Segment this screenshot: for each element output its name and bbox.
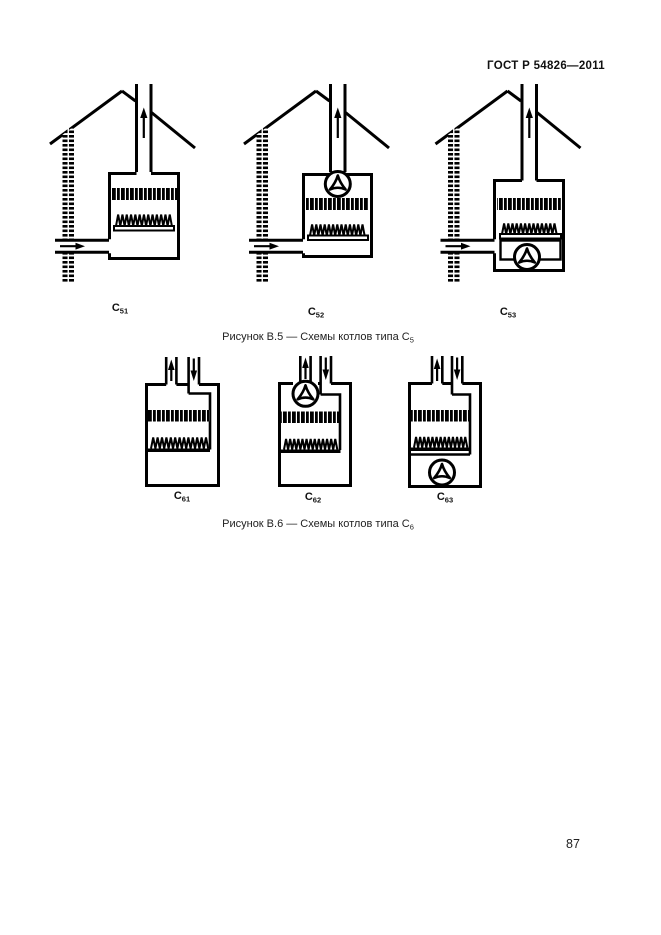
heat-exchanger	[306, 198, 369, 210]
fan-icon	[293, 381, 318, 406]
air-intake-down-arrow-icon	[454, 358, 461, 381]
air-intake-down-arrow-icon	[191, 359, 198, 382]
heat-exchanger	[281, 412, 340, 424]
heat-exchanger	[497, 198, 562, 210]
burner-flames	[502, 224, 557, 235]
diagram-c53	[436, 84, 581, 282]
diagram-label-c62: C62	[305, 491, 321, 505]
burner-bar	[411, 448, 471, 452]
diagram-label-c61: C61	[174, 490, 190, 504]
page-number: 87	[566, 837, 580, 851]
fan-icon	[430, 460, 455, 485]
diagram-label-c63: C63	[437, 491, 453, 505]
figure-b5-caption: Рисунок В.5 — Схемы котлов типа С5	[222, 331, 414, 345]
diagram-label-c51: C51	[112, 302, 128, 316]
heat-exchanger	[111, 188, 177, 200]
diagram-c51	[50, 84, 195, 282]
burner-flames	[116, 215, 172, 227]
burner-bar	[500, 234, 561, 239]
burner-bar	[308, 236, 368, 241]
burner-flames	[151, 438, 208, 449]
fan-icon	[325, 172, 350, 197]
diagram-label-c53: C53	[500, 306, 516, 320]
diagram-c52	[244, 84, 389, 282]
diagram-c61	[147, 357, 219, 486]
burner-flames	[284, 439, 337, 450]
flue-up-arrow-icon	[434, 359, 441, 382]
boiler-casing	[147, 385, 219, 486]
diagram-c63	[410, 356, 481, 487]
figure-b6-caption: Рисунок В.6 — Схемы котлов типа С6	[222, 518, 414, 532]
flue-up-arrow-icon	[168, 360, 175, 382]
document-page: ГОСТ Р 54826—2011	[0, 0, 661, 935]
burner-bar	[147, 449, 210, 453]
burner-flames	[310, 225, 365, 236]
heat-exchanger	[148, 410, 210, 422]
burner-bar	[114, 226, 174, 231]
diagram-label-c52: C52	[308, 306, 324, 320]
diagram-c62	[280, 356, 351, 486]
burner-flames	[414, 437, 467, 448]
heat-exchanger	[411, 410, 470, 422]
fan-icon	[515, 245, 540, 270]
flue-up-arrow-icon	[302, 358, 309, 380]
boiler-schemes-figure	[0, 0, 661, 935]
air-intake-down-arrow-icon	[323, 358, 330, 381]
burner-bar	[281, 450, 341, 454]
